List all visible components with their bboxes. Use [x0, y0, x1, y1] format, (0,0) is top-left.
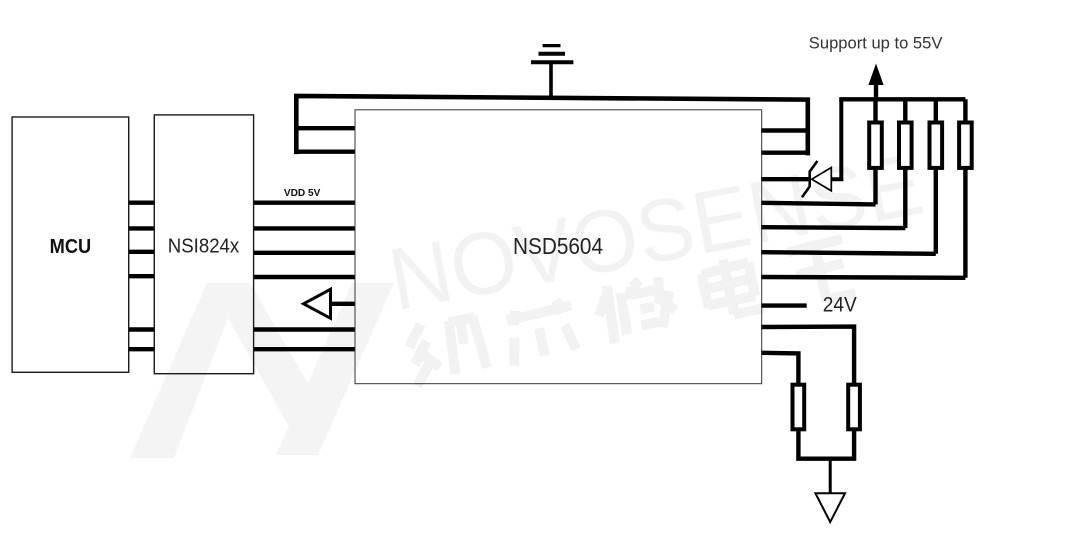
- svg-text:MCU: MCU: [50, 236, 92, 258]
- svg-text:24V: 24V: [823, 294, 857, 317]
- svg-text:NSD5604: NSD5604: [513, 233, 603, 259]
- svg-text:Support up to 55V: Support up to 55V: [809, 34, 943, 53]
- svg-text:NSI824x: NSI824x: [168, 236, 240, 258]
- svg-text:VDD 5V: VDD 5V: [284, 187, 321, 199]
